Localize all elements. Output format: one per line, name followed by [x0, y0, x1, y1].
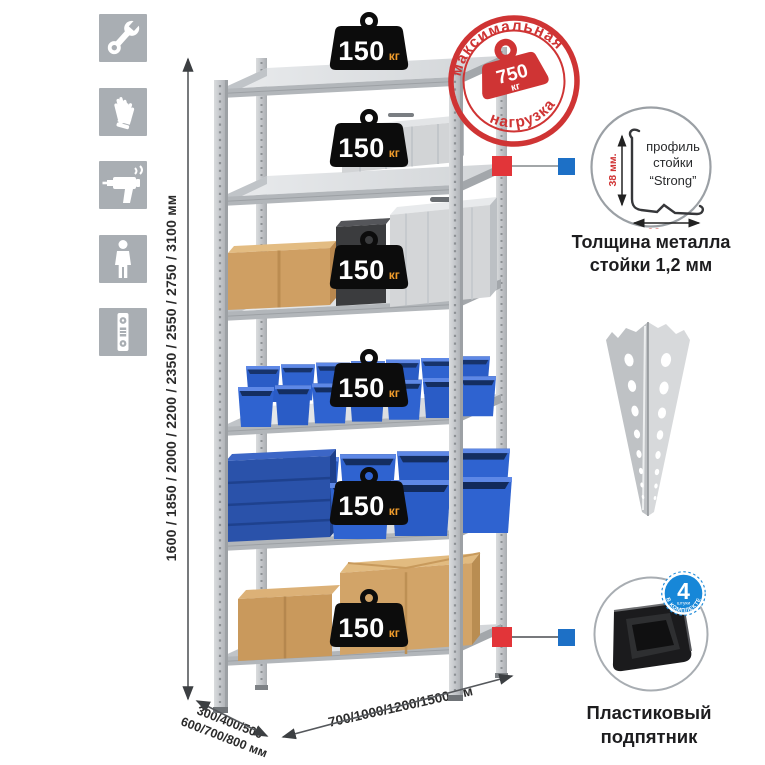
shelf2-load-weight: 150кг: [325, 109, 413, 171]
profile-callout-blue-square: [558, 158, 575, 175]
load-value: 150: [338, 36, 385, 66]
load-unit: кг: [389, 268, 400, 282]
load-value: 150: [338, 613, 385, 643]
shelf4-load-weight: 150кг: [325, 349, 413, 411]
depth-dimension-line: [197, 701, 267, 736]
included-quantity-badge: 4 штуки в комплекте: [661, 571, 706, 616]
load-value: 150: [338, 373, 385, 403]
foot-callout-blue-square: [558, 629, 575, 646]
foot-callout-red-square: [492, 627, 512, 647]
badge-value: 4: [677, 578, 690, 604]
load-unit: кг: [389, 386, 400, 400]
load-value: 150: [338, 491, 385, 521]
width-dimension-line: [283, 676, 512, 737]
badge-small-text: штуки: [677, 602, 691, 607]
load-value: 150: [338, 133, 385, 163]
load-value: 150: [338, 255, 385, 285]
shelf6-load-weight: 150кг: [325, 589, 413, 651]
load-unit: кг: [389, 626, 400, 640]
load-unit: кг: [389, 504, 400, 518]
shelf1-load-weight: 150кг: [325, 12, 413, 74]
profile-callout-red-square: [492, 156, 512, 176]
load-unit: кг: [389, 146, 400, 160]
shelving-infographic: 1600 / 1850 / 2000 / 2200 / 2350 / 2550 …: [0, 0, 765, 765]
shelf5-load-weight: 150кг: [325, 467, 413, 529]
load-unit: кг: [389, 49, 400, 63]
shelf3-load-weight: 150кг: [325, 231, 413, 293]
